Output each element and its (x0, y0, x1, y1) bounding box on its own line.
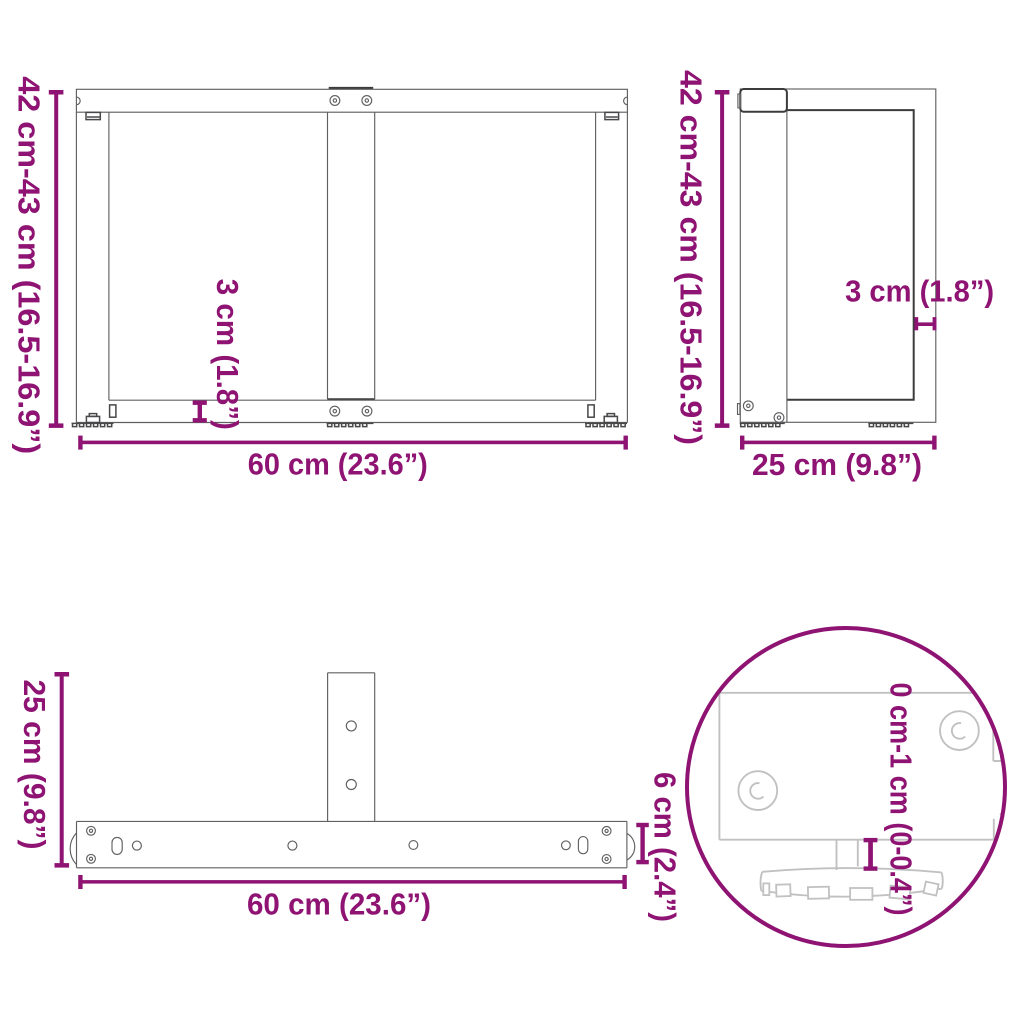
svg-text:42 cm-43 cm (16.5-16.9”): 42 cm-43 cm (16.5-16.9”) (674, 70, 709, 445)
svg-text:3 cm (1.8”): 3 cm (1.8”) (210, 279, 245, 430)
svg-text:6 cm (2.4”): 6 cm (2.4”) (648, 772, 683, 922)
svg-text:25 cm (9.8”): 25 cm (9.8”) (752, 447, 922, 482)
svg-text:0 cm-1 cm (0-0.4”): 0 cm-1 cm (0-0.4”) (884, 683, 919, 916)
svg-text:60 cm (23.6”): 60 cm (23.6”) (248, 447, 428, 482)
svg-text:42 cm-43 cm (16.5-16.9”): 42 cm-43 cm (16.5-16.9”) (12, 76, 47, 454)
svg-text:60 cm (23.6”): 60 cm (23.6”) (247, 887, 431, 922)
svg-text:3 cm (1.8”): 3 cm (1.8”) (845, 274, 994, 309)
svg-text:25 cm (9.8”): 25 cm (9.8”) (17, 680, 52, 850)
